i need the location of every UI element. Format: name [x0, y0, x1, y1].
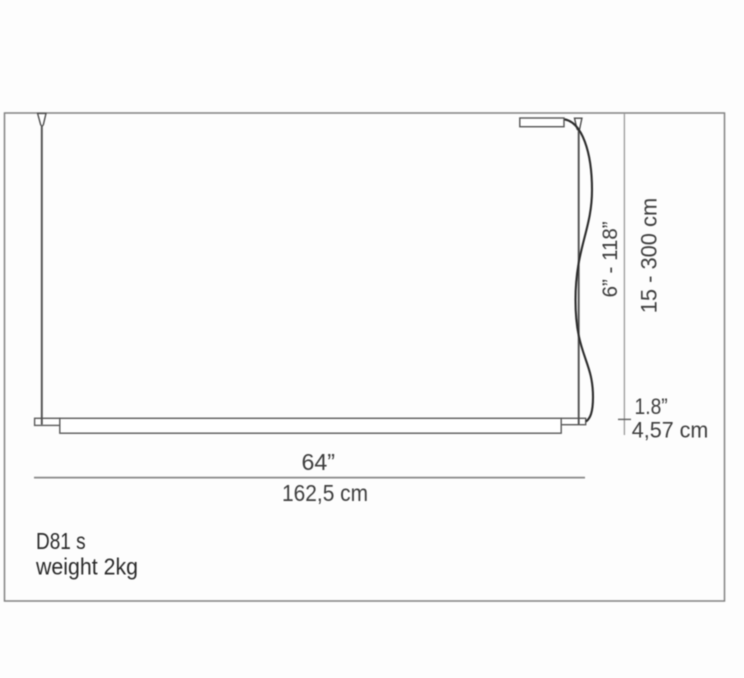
svg-text:weight 2kg: weight 2kg — [35, 554, 138, 580]
svg-text:6” - 118”: 6” - 118” — [599, 221, 622, 297]
svg-text:D81 s: D81 s — [36, 528, 86, 554]
svg-text:162,5 cm: 162,5 cm — [282, 480, 368, 506]
svg-text:64”: 64” — [302, 449, 336, 475]
svg-text:1.8”: 1.8” — [635, 394, 668, 419]
svg-text:15 - 300 cm: 15 - 300 cm — [637, 198, 662, 314]
svg-text:4,57 cm: 4,57 cm — [632, 418, 709, 443]
